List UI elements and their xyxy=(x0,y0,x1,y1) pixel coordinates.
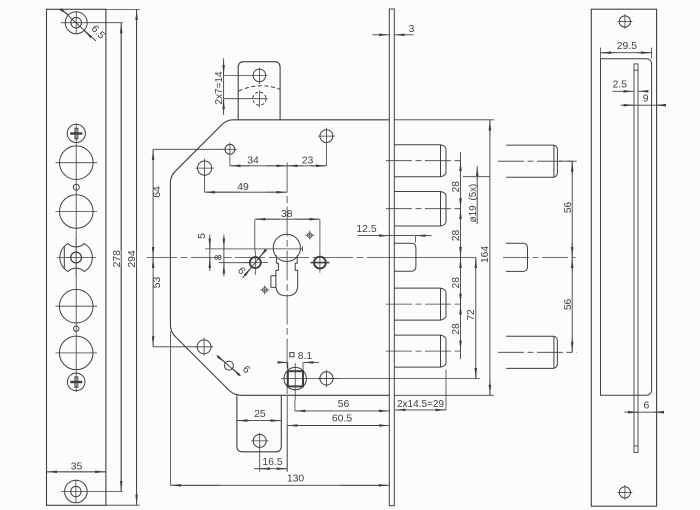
svg-text:2x7=14: 2x7=14 xyxy=(214,71,225,105)
svg-text:9: 9 xyxy=(643,93,649,104)
svg-text:2x14.5=29: 2x14.5=29 xyxy=(397,399,444,410)
svg-text:2.5: 2.5 xyxy=(612,80,627,91)
svg-text:ø19 (5x): ø19 (5x) xyxy=(468,184,479,223)
svg-text:164: 164 xyxy=(480,246,491,263)
svg-text:3: 3 xyxy=(409,24,415,35)
svg-text:28: 28 xyxy=(451,230,462,242)
svg-text:294: 294 xyxy=(127,250,138,268)
svg-text:8.1: 8.1 xyxy=(298,351,313,362)
svg-text:5: 5 xyxy=(197,233,208,239)
svg-text:49: 49 xyxy=(237,182,249,193)
svg-text:34: 34 xyxy=(247,156,259,167)
svg-text:35: 35 xyxy=(71,461,83,472)
svg-text:278: 278 xyxy=(112,250,123,268)
svg-text:28: 28 xyxy=(451,277,462,289)
svg-text:56: 56 xyxy=(563,299,574,311)
svg-text:130: 130 xyxy=(287,474,305,485)
svg-text:25: 25 xyxy=(254,409,266,420)
svg-text:72: 72 xyxy=(466,309,477,321)
svg-text:29.5: 29.5 xyxy=(617,41,637,52)
svg-text:8: 8 xyxy=(214,254,225,260)
svg-text:6: 6 xyxy=(644,400,650,411)
svg-text:28: 28 xyxy=(451,323,462,335)
svg-text:28: 28 xyxy=(451,181,462,193)
svg-text:56: 56 xyxy=(338,399,350,410)
svg-text:60.5: 60.5 xyxy=(332,414,352,425)
svg-text:64: 64 xyxy=(152,186,163,198)
svg-text:16.5: 16.5 xyxy=(262,457,282,468)
svg-text:23: 23 xyxy=(302,156,314,167)
svg-text:53: 53 xyxy=(152,277,163,289)
svg-text:12.5: 12.5 xyxy=(356,224,376,235)
